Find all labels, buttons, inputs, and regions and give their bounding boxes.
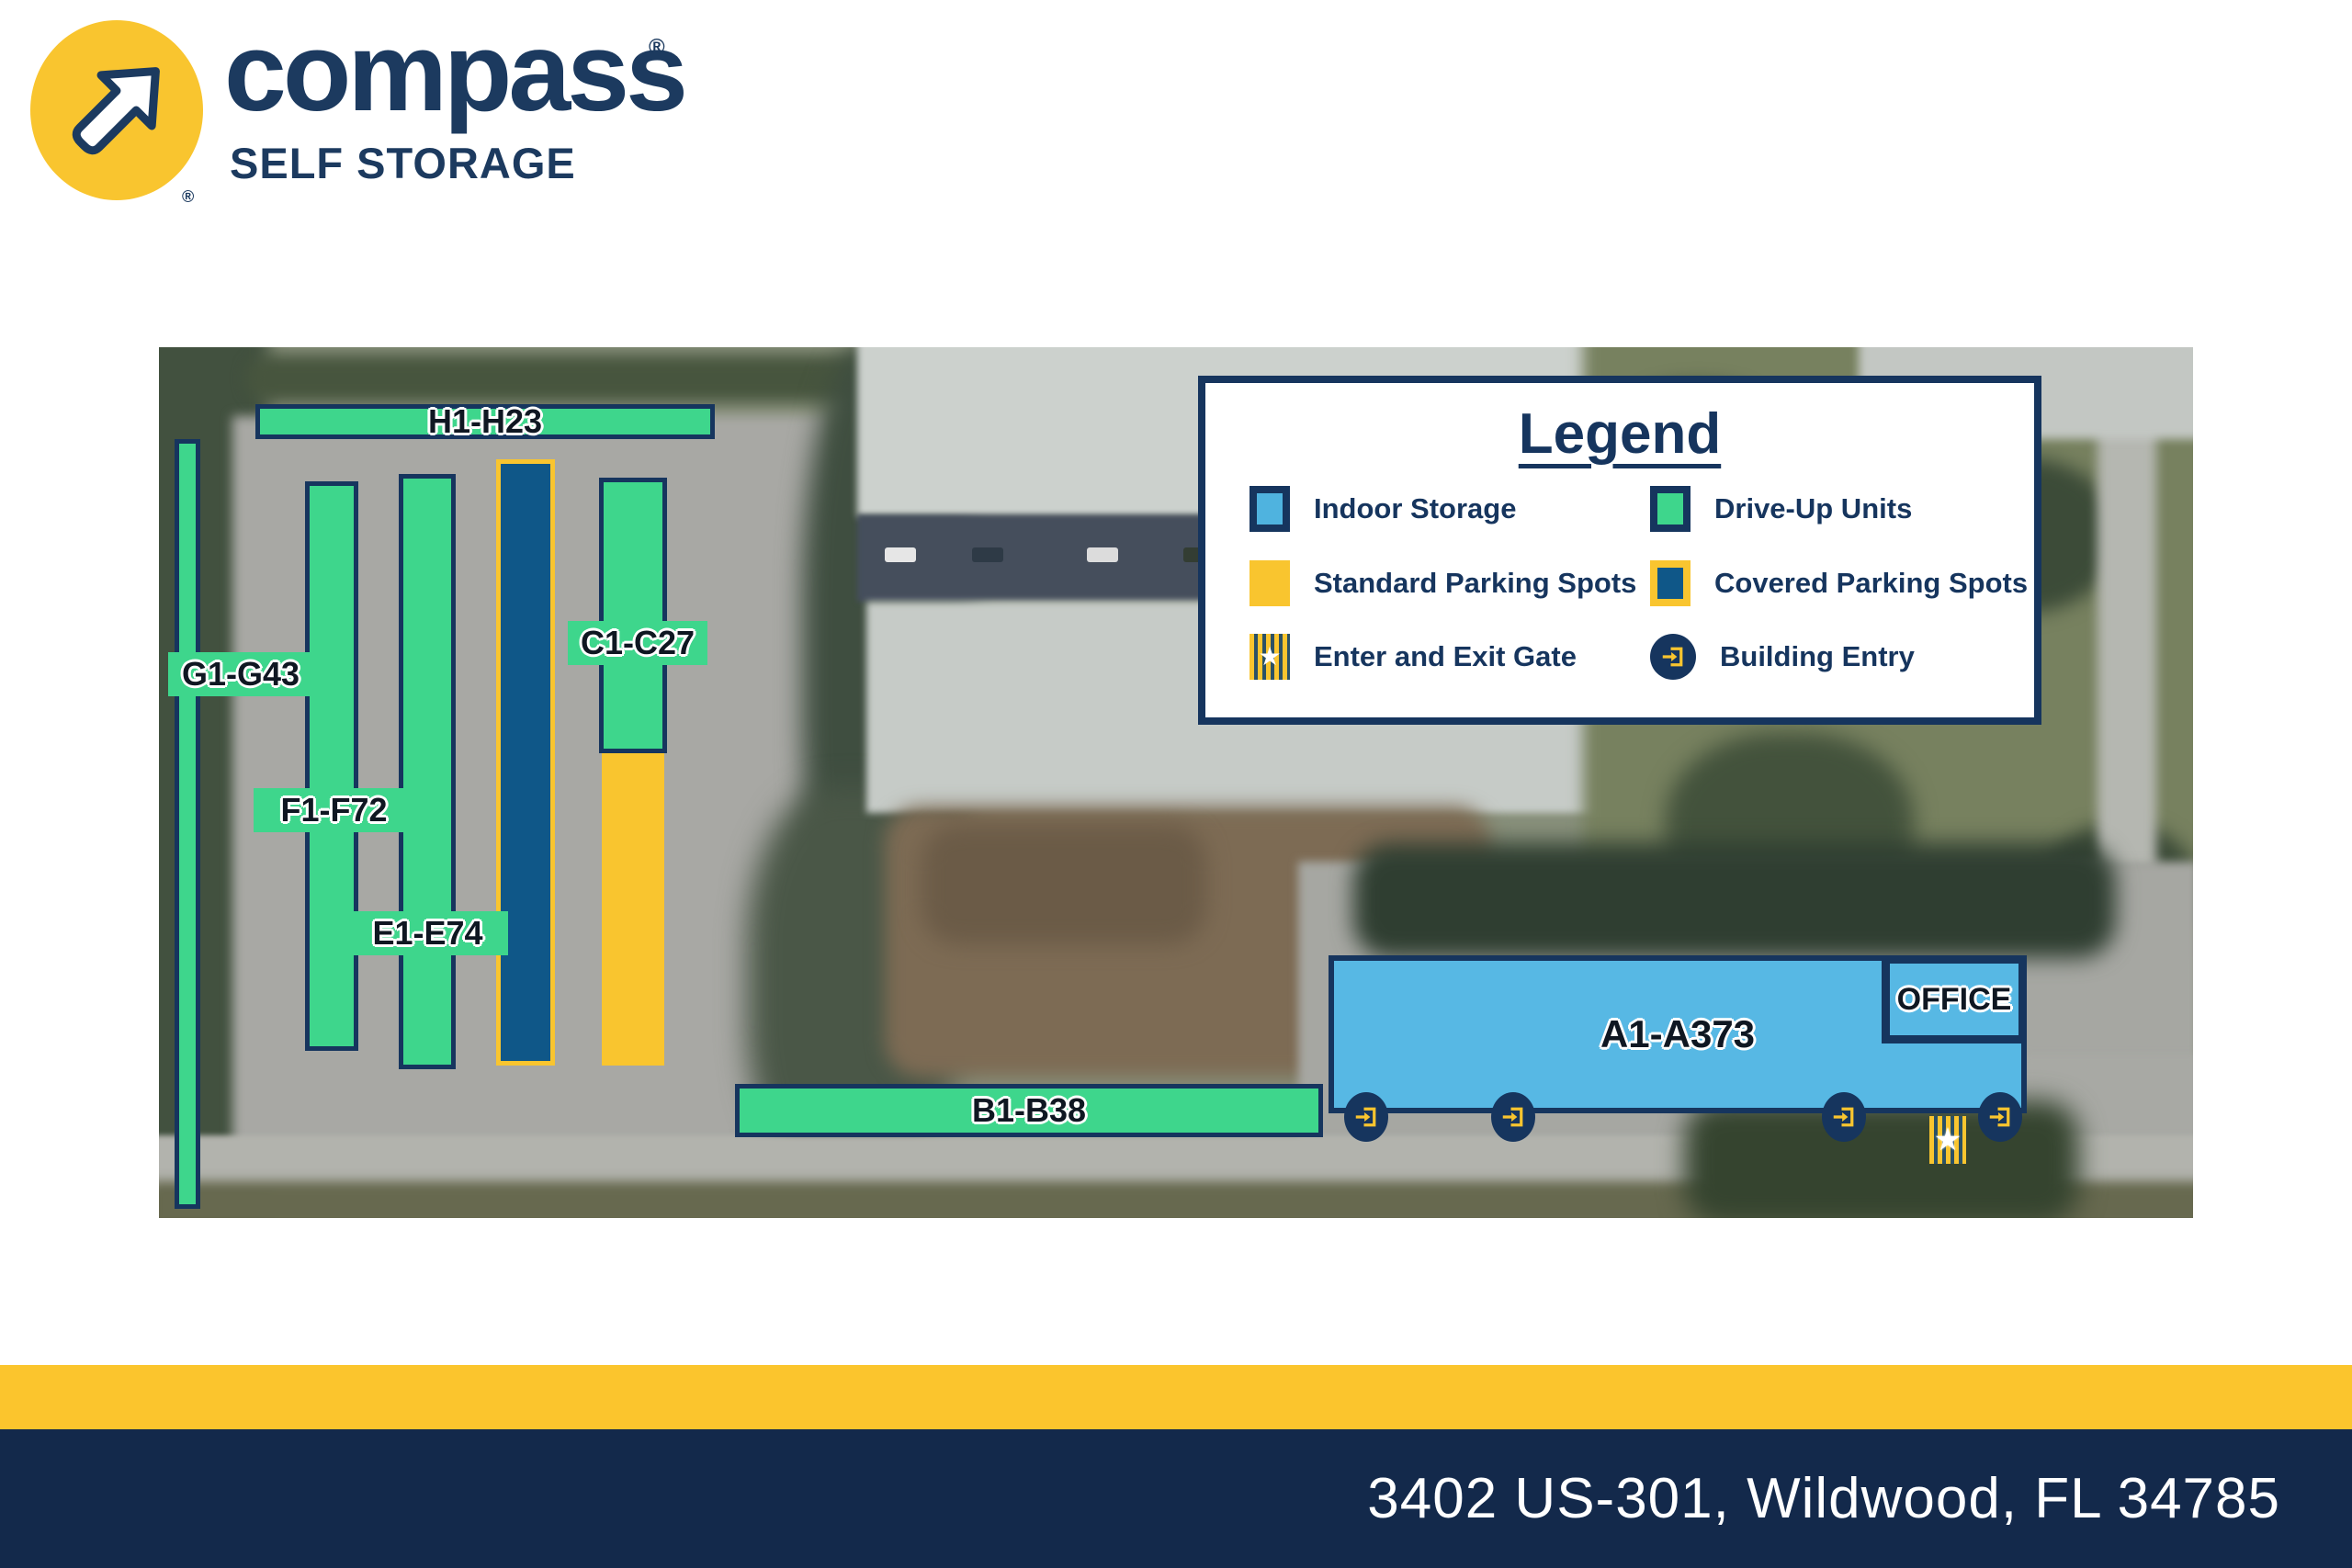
- unit-label-chip-f: F1-F72: [254, 788, 414, 832]
- unit-label-chip-c: C1-C27: [568, 621, 707, 665]
- compass-logo-icon: [30, 20, 203, 200]
- brand-wordmark: compass: [224, 7, 684, 136]
- office-box: OFFICE: [1882, 955, 2027, 1043]
- registered-trademark: ®: [649, 35, 665, 61]
- unit-label-e: E1-E74: [372, 914, 482, 953]
- unit-building-a: A1-A373 OFFICE: [1329, 955, 2027, 1113]
- map-trees: [1353, 843, 2116, 958]
- covered-parking-swatch-icon: [1650, 560, 1690, 606]
- legend-panel: Legend Indoor Storage Drive-Up Units Sta…: [1198, 376, 2041, 725]
- standard-parking-swatch-icon: [1249, 560, 1290, 606]
- building-entry-icon: [1491, 1092, 1535, 1142]
- unit-label-c: C1-C27: [581, 624, 695, 662]
- legend-item-building-entry: Building Entry: [1650, 633, 1915, 681]
- unit-label-a: A1-A373: [1600, 1012, 1755, 1056]
- office-label: OFFICE: [1897, 982, 2012, 1018]
- unit-label-g: G1-G43: [182, 655, 300, 694]
- unit-building-g: [175, 439, 200, 1209]
- map-trees: [246, 355, 917, 402]
- indoor-storage-swatch-icon: [1249, 486, 1290, 532]
- standard-parking-row: [602, 753, 664, 1066]
- legend-item-covered-parking: Covered Parking Spots: [1650, 559, 2028, 607]
- covered-parking-row: [496, 459, 555, 1066]
- drive-up-swatch-icon: [1650, 486, 1690, 532]
- footer-bar: 3402 US-301, Wildwood, FL 34785: [0, 1429, 2352, 1568]
- building-entry-swatch-icon: [1650, 634, 1696, 680]
- legend-item-label: Standard Parking Spots: [1314, 567, 1636, 600]
- enter-exit-gate-icon: ★: [1929, 1116, 1966, 1164]
- legend-item-label: Enter and Exit Gate: [1314, 640, 1577, 673]
- registered-trademark: ®: [182, 187, 194, 207]
- legend-item-label: Building Entry: [1720, 640, 1915, 673]
- building-entry-icon: [1344, 1092, 1388, 1142]
- facility-address: 3402 US-301, Wildwood, FL 34785: [1367, 1466, 2280, 1531]
- gate-star-icon: ★: [1258, 644, 1281, 670]
- legend-item-enter-exit-gate: ★ Enter and Exit Gate: [1249, 633, 1577, 681]
- page: ® compass ® SELF STORAGE: [0, 0, 2352, 1568]
- legend-item-indoor-storage: Indoor Storage: [1249, 485, 1516, 533]
- unit-building-e: [399, 474, 456, 1069]
- unit-label-b: B1-B38: [972, 1091, 1086, 1130]
- building-entry-icon: [1978, 1092, 2022, 1142]
- unit-label-h: H1-H23: [428, 402, 542, 441]
- unit-building-c: [599, 478, 667, 753]
- unit-label-chip-g: G1-G43: [168, 652, 313, 696]
- unit-building-h: H1-H23: [255, 404, 715, 439]
- unit-label-chip-e: E1-E74: [347, 911, 508, 955]
- map-car: [972, 547, 1003, 562]
- building-entry-icon: [1822, 1092, 1866, 1142]
- map-car: [885, 547, 916, 562]
- gate-swatch-icon: ★: [1249, 634, 1290, 680]
- legend-item-standard-parking: Standard Parking Spots: [1249, 559, 1636, 607]
- site-map: H1-H23 G1-G43 F1-F72 E1-E74 C1-C27 B1-B3…: [159, 347, 2193, 1218]
- legend-item-label: Indoor Storage: [1314, 492, 1516, 525]
- unit-label-f: F1-F72: [280, 791, 387, 829]
- unit-building-f: [305, 481, 358, 1051]
- legend-item-drive-up-units: Drive-Up Units: [1650, 485, 1912, 533]
- legend-item-label: Drive-Up Units: [1714, 492, 1912, 525]
- brand-tagline: SELF STORAGE: [230, 138, 576, 188]
- arrow-icon: [48, 41, 186, 179]
- legend-item-label: Covered Parking Spots: [1714, 567, 2028, 600]
- legend-title: Legend: [1205, 401, 2034, 467]
- gate-star-icon: ★: [1934, 1124, 1962, 1156]
- map-car: [1087, 547, 1118, 562]
- unit-building-b: B1-B38: [735, 1084, 1323, 1137]
- footer-accent-stripe: [0, 1365, 2352, 1429]
- map-dirt-field: [922, 825, 1206, 944]
